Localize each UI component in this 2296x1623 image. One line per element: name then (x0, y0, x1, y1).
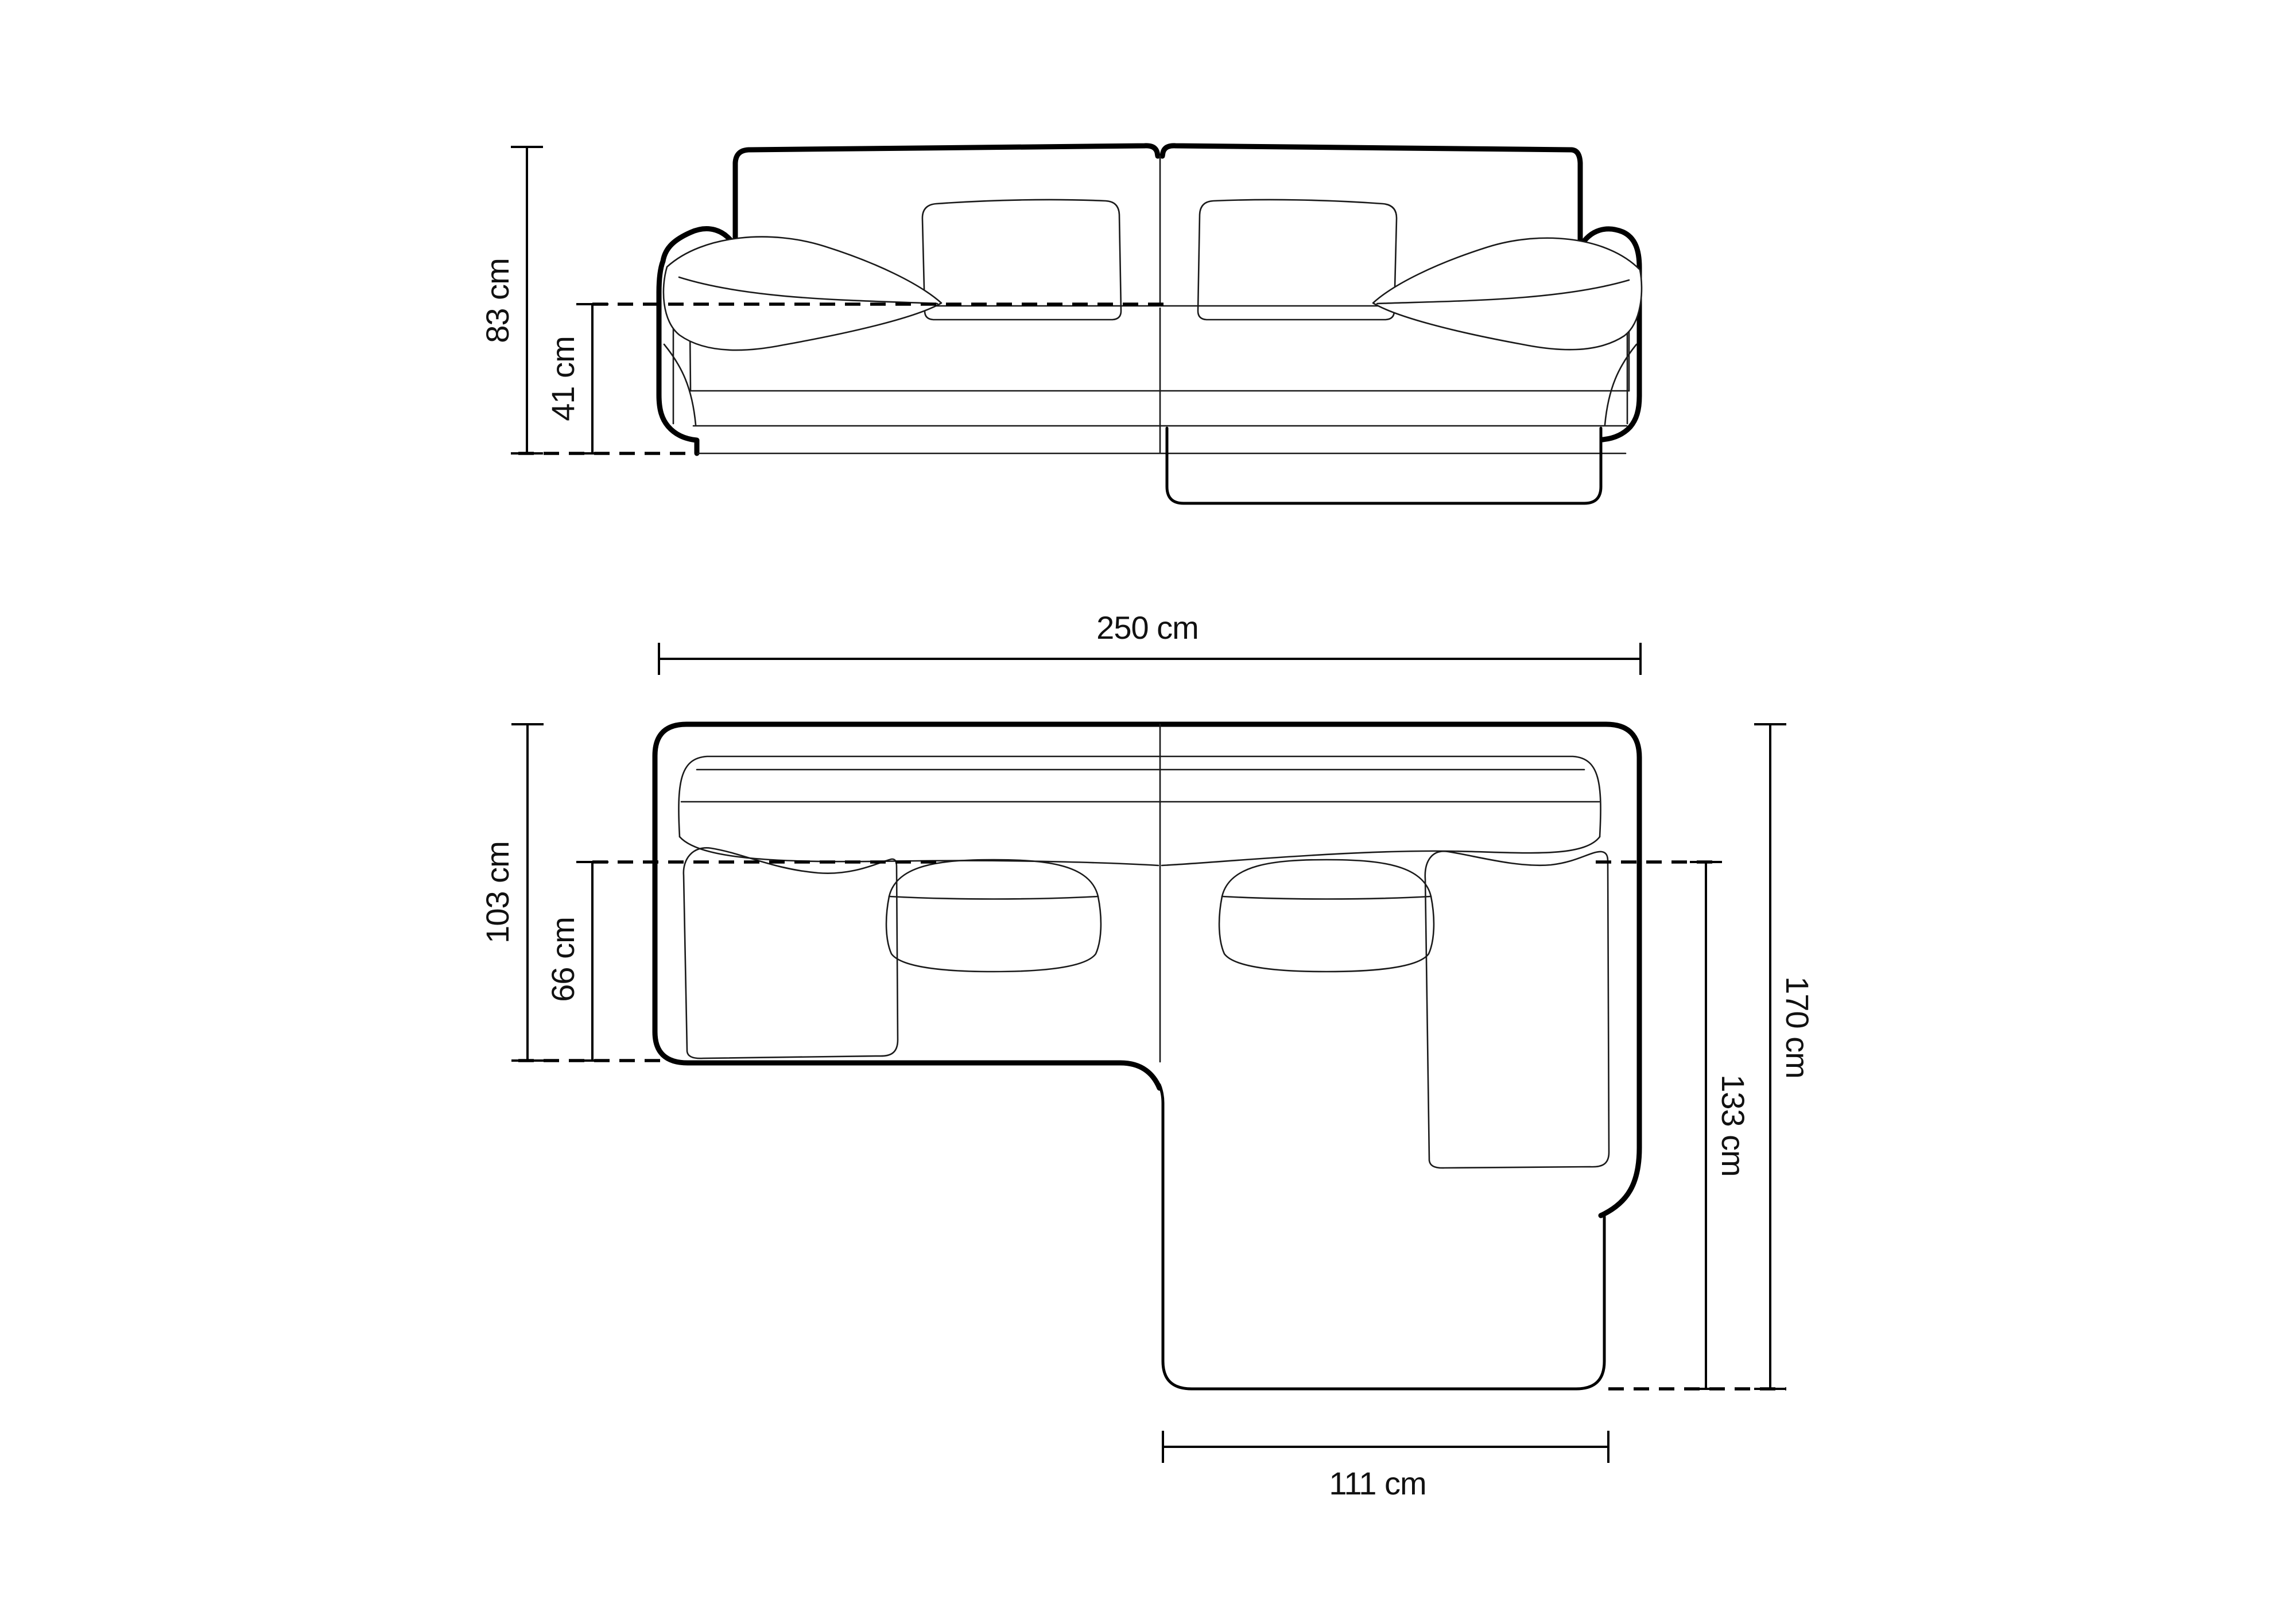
dimension-total-height: 83 cm (479, 147, 543, 453)
dimension-body-depth: 103 cm (479, 724, 544, 1061)
front-right-arm-pillow (1373, 238, 1642, 350)
dimension-label-170: 170 cm (1779, 976, 1816, 1078)
cushion-top-arc (889, 860, 1098, 896)
dimension-line (1163, 1431, 1608, 1463)
front-left-arm-pillow (664, 237, 941, 350)
front-backrest-outline (735, 146, 1580, 249)
dimension-label-41: 41 cm (545, 336, 581, 421)
front-view: 83 cm 41 cm (479, 146, 1642, 503)
dimension-total-width: 250 cm (659, 609, 1640, 675)
dimension-chaise-depth: 133 cm (1690, 862, 1751, 1389)
dimension-label-111: 111 cm (1329, 1465, 1426, 1501)
cushion-top-arc (1222, 860, 1431, 896)
dimension-line (511, 147, 543, 453)
cushion-body (886, 896, 1101, 972)
dimension-label-103: 103 cm (479, 841, 515, 943)
cushion-body (1219, 896, 1434, 972)
dimension-chaise-width: 111 cm (1163, 1431, 1608, 1501)
top-chaise-outline (1159, 1085, 1604, 1389)
dimension-label-250: 250 cm (1096, 609, 1199, 646)
cushion-chord (1222, 896, 1431, 899)
top-body-outline (655, 724, 1639, 1216)
cushion-chord (889, 896, 1098, 899)
dimension-label-83: 83 cm (479, 258, 515, 343)
top-right-arm-pillow (1425, 851, 1609, 1168)
dimension-line (511, 724, 544, 1061)
top-left-arm-pillow (684, 848, 898, 1058)
dimension-seat-depth: 66 cm (545, 862, 608, 1061)
dimension-seat-height: 41 cm (545, 304, 608, 453)
front-chaise-base (1167, 428, 1601, 503)
dimension-diagram-sheet: 83 cm 41 cm (0, 0, 2296, 1623)
top-view: 250 cm 103 cm 66 cm 170 cm 133 cm 111 cm (479, 609, 1816, 1501)
dimension-line (659, 643, 1640, 675)
dimension-line (576, 862, 608, 1061)
dimension-total-depth: 170 cm (1754, 724, 1816, 1389)
top-left-seat-cushion (886, 860, 1101, 972)
front-back-cushion-left (922, 200, 1121, 320)
top-right-seat-cushion (1219, 860, 1434, 972)
front-back-cushion-right (1198, 200, 1397, 320)
dimension-label-133: 133 cm (1715, 1074, 1751, 1177)
top-backrest-band-front-right (1162, 837, 1600, 865)
dimension-line (576, 304, 608, 453)
top-backrest-band-top (678, 756, 1600, 837)
dimension-label-66: 66 cm (545, 917, 581, 1002)
